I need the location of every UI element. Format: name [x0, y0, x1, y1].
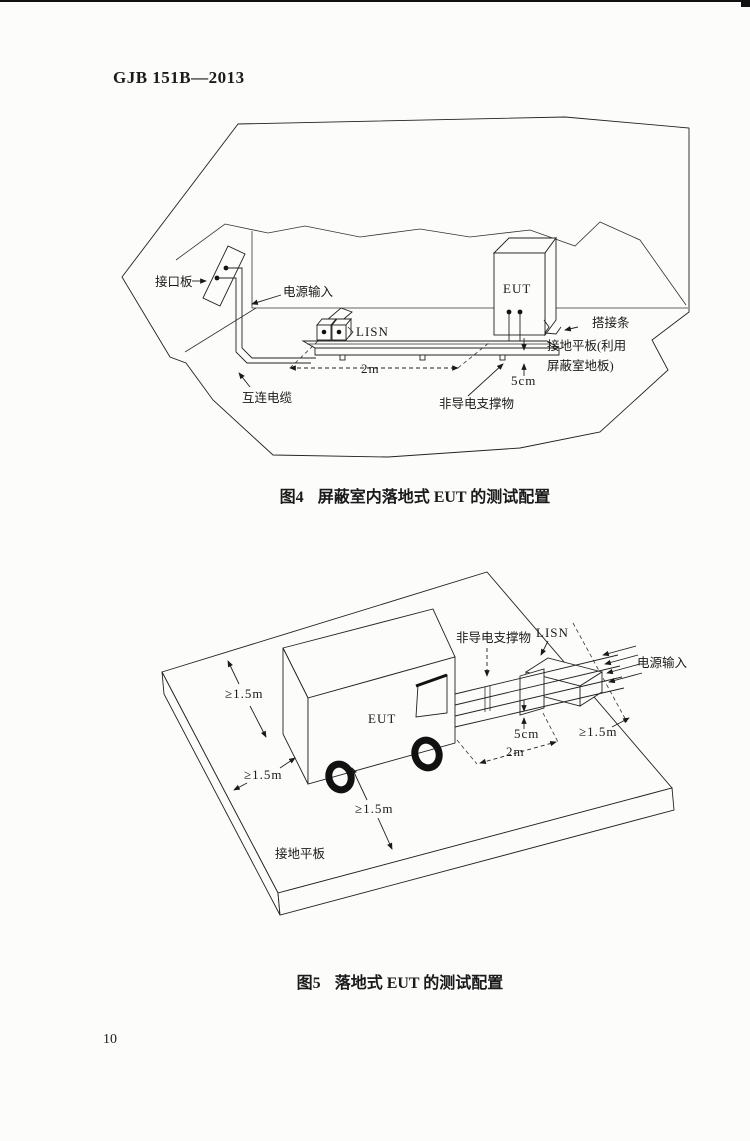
figure5-title: 落地式 EUT 的测试配置 [335, 975, 504, 992]
floor-left-edge [185, 308, 256, 352]
interconnect-cable-label: 互连电缆 [242, 390, 293, 405]
figure4-shielded-room-diagram: 接口板 电源输入 LISN EUT 搭接条 接地平板(利用 屏蔽室地板) 5cm… [105, 110, 715, 478]
shielded-room-outline [122, 117, 689, 457]
interface-panel [203, 246, 245, 306]
ground-plane-label: 接地平板 [275, 846, 326, 861]
dim-5cm-label: 5cm [514, 726, 539, 741]
scan-corner-artifact [741, 0, 750, 7]
bonding-strap-leader [565, 327, 578, 330]
figure5-ground-plane-diagram: EUT 非导电支撑物 LISN 电源输入 5cm 2m ≥1.5m ≥1.5m … [140, 555, 710, 960]
cable-raceway-strip [303, 341, 559, 360]
dim-15-bottom-label: ≥1.5m [355, 801, 394, 816]
interconnect-cable-leader [239, 373, 250, 387]
support-label: 非导电支撑物 [439, 396, 514, 411]
dim-2m-label: 2m [506, 744, 525, 759]
eut-label: EUT [503, 281, 531, 296]
interface-panel-label: 接口板 [155, 274, 193, 289]
lisn-boxes [317, 308, 353, 340]
document-page: { "page": { "header": "GJB 151B—2013", "… [0, 0, 750, 1141]
figure5-caption: 图5落地式 EUT 的测试配置 [50, 969, 750, 993]
lisn-label: LISN [536, 625, 569, 640]
standard-number-header: GJB 151B—2013 [113, 68, 245, 88]
power-input-leader [252, 295, 281, 304]
figure5-number: 图5 [297, 975, 321, 992]
support-label: 非导电支撑物 [456, 630, 531, 645]
scan-edge-artifact [0, 0, 750, 2]
figure4-number: 图4 [280, 489, 304, 506]
dim-15-right-label: ≥1.5m [579, 724, 618, 739]
dim-5cm-label: 5cm [511, 373, 536, 388]
dim-15-left-label: ≥1.5m [244, 767, 283, 782]
lisn-label: LISN [356, 324, 389, 339]
torn-wall-edge [176, 222, 686, 305]
ground-plane-label-line2: 屏蔽室地板) [547, 358, 614, 373]
power-input-label: 电源输入 [283, 284, 334, 299]
dim-15-top-label: ≥1.5m [225, 686, 264, 701]
bonding-strap-label: 搭接条 [592, 315, 630, 330]
power-input-label: 电源输入 [637, 655, 688, 670]
ground-plane-label-line1: 接地平板(利用 [547, 338, 626, 353]
dim-2m-label: 2m [361, 361, 380, 376]
eut-label: EUT [368, 711, 396, 726]
page-number: 10 [103, 1032, 117, 1048]
figure4-title: 屏蔽室内落地式 EUT 的测试配置 [318, 489, 551, 506]
figure4-caption: 图4屏蔽室内落地式 EUT 的测试配置 [80, 483, 750, 507]
support-leader [468, 364, 503, 396]
